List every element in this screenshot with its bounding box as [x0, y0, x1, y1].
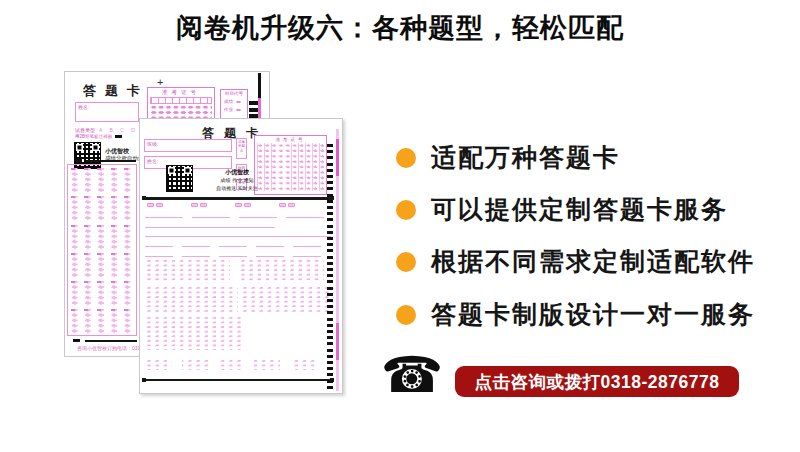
- feature-label: 根据不同需求定制适配软件: [431, 245, 755, 278]
- bullet-dot-icon: [396, 148, 416, 168]
- class-field-box: 班级:: [144, 139, 232, 152]
- fill-blank-line: [145, 221, 275, 228]
- class-label: 班级:: [145, 140, 231, 148]
- qr-caption-text: 自动推送 实时关注: [196, 185, 278, 193]
- pencil-mark-sample: [115, 135, 122, 138]
- feature-label: 答题卡制版设计一对一服务: [431, 298, 755, 331]
- pencil-note: 用2B铅笔标注样例: [75, 134, 112, 139]
- fill-blank-row: [145, 240, 331, 247]
- subject-row-score: 成绩: [224, 99, 247, 104]
- bubble-block: [146, 316, 241, 350]
- paper-type-label: 试卷类型: [237, 139, 246, 148]
- slide: 阅卷机升级六：各种题型，轻松匹配 答题卡 姓名: 试卷类型A B C D 用2B…: [0, 0, 800, 452]
- answer-sheet-front: 答题卡 班级: 姓名: 试卷类型 A 贴码 考号 准考证号 小优智校 成绩 作业…: [139, 118, 343, 394]
- edge-line: [336, 129, 339, 391]
- exam-number-label: 准考证号: [148, 89, 214, 96]
- page-title: 阅卷机升级六：各种题型，轻松匹配: [0, 10, 800, 46]
- fill-blank-row: [145, 250, 331, 257]
- subject-row-homework: 作业: [224, 107, 247, 112]
- bubble-row: [146, 359, 326, 370]
- divider-line: [85, 340, 137, 342]
- subject-code-label: 科目代号: [221, 91, 247, 96]
- divider-line: [86, 160, 136, 162]
- paper-type-box: 试卷类型 A: [236, 138, 247, 159]
- qr-caption: 小优智校 成绩 作业 通知 自动推送 实时关注: [196, 168, 278, 192]
- feature-item: 适配万种答题卡: [396, 141, 620, 174]
- bubble-block: [70, 281, 134, 305]
- edge-line: [258, 73, 261, 119]
- timing-marks-column: [327, 144, 333, 392]
- timing-mark: [73, 339, 80, 342]
- bullet-dot-icon: [396, 200, 416, 220]
- bubble-block: [146, 286, 238, 312]
- bullet-dot-icon: [396, 252, 416, 272]
- telephone-icon: ☎: [381, 350, 443, 400]
- feature-item: 可以提供定制答题卡服务: [396, 193, 728, 226]
- name-field-box: 姓名:: [75, 102, 139, 122]
- name-label: 姓名:: [145, 157, 231, 165]
- feature-item: 答题卡制版设计一对一服务: [396, 298, 755, 331]
- paper-type-option: A: [237, 148, 246, 154]
- bullet-dot-icon: [396, 305, 416, 325]
- feature-label: 适配万种答题卡: [431, 141, 620, 174]
- bubble-block: [70, 225, 134, 249]
- exam-number-write-row: [150, 97, 212, 104]
- qr-caption-brand: 小优智校: [196, 168, 278, 177]
- exam-number-label: 准考证号: [255, 137, 326, 142]
- paper-type-options: A B C D: [99, 127, 138, 133]
- true-false-question-row: [147, 203, 327, 207]
- bubble-block: [70, 253, 134, 277]
- paper-type-label: 试卷类型: [75, 127, 95, 133]
- bubble-block: [70, 196, 134, 220]
- name-label: 姓名:: [76, 103, 138, 111]
- timing-mark: [75, 159, 82, 162]
- bubble-answer-grid: [67, 164, 137, 336]
- section-divider: [144, 197, 332, 200]
- bubble-block: [146, 259, 230, 282]
- feature-label: 可以提供定制答题卡服务: [431, 193, 728, 226]
- feature-item: 根据不同需求定制适配软件: [396, 245, 755, 278]
- fill-blank-row: [145, 211, 329, 218]
- pencil-note-row: 用2B铅笔标注样例: [75, 134, 122, 139]
- paper-type-row: 试卷类型A B C D: [75, 127, 138, 133]
- bubble-block: [70, 309, 134, 333]
- fill-blank-line: [145, 230, 331, 237]
- sheet-title: 答题卡: [83, 82, 149, 100]
- qr-code: [166, 165, 193, 192]
- bubble-block: [242, 286, 334, 312]
- bubble-block: [70, 168, 134, 192]
- section-divider: [144, 379, 332, 381]
- bubble-block: [240, 259, 324, 282]
- contact-banner-button[interactable]: 点击咨询或拨打0318-2876778: [455, 366, 739, 397]
- qr-caption-text: 成绩 作业 通知: [196, 177, 278, 185]
